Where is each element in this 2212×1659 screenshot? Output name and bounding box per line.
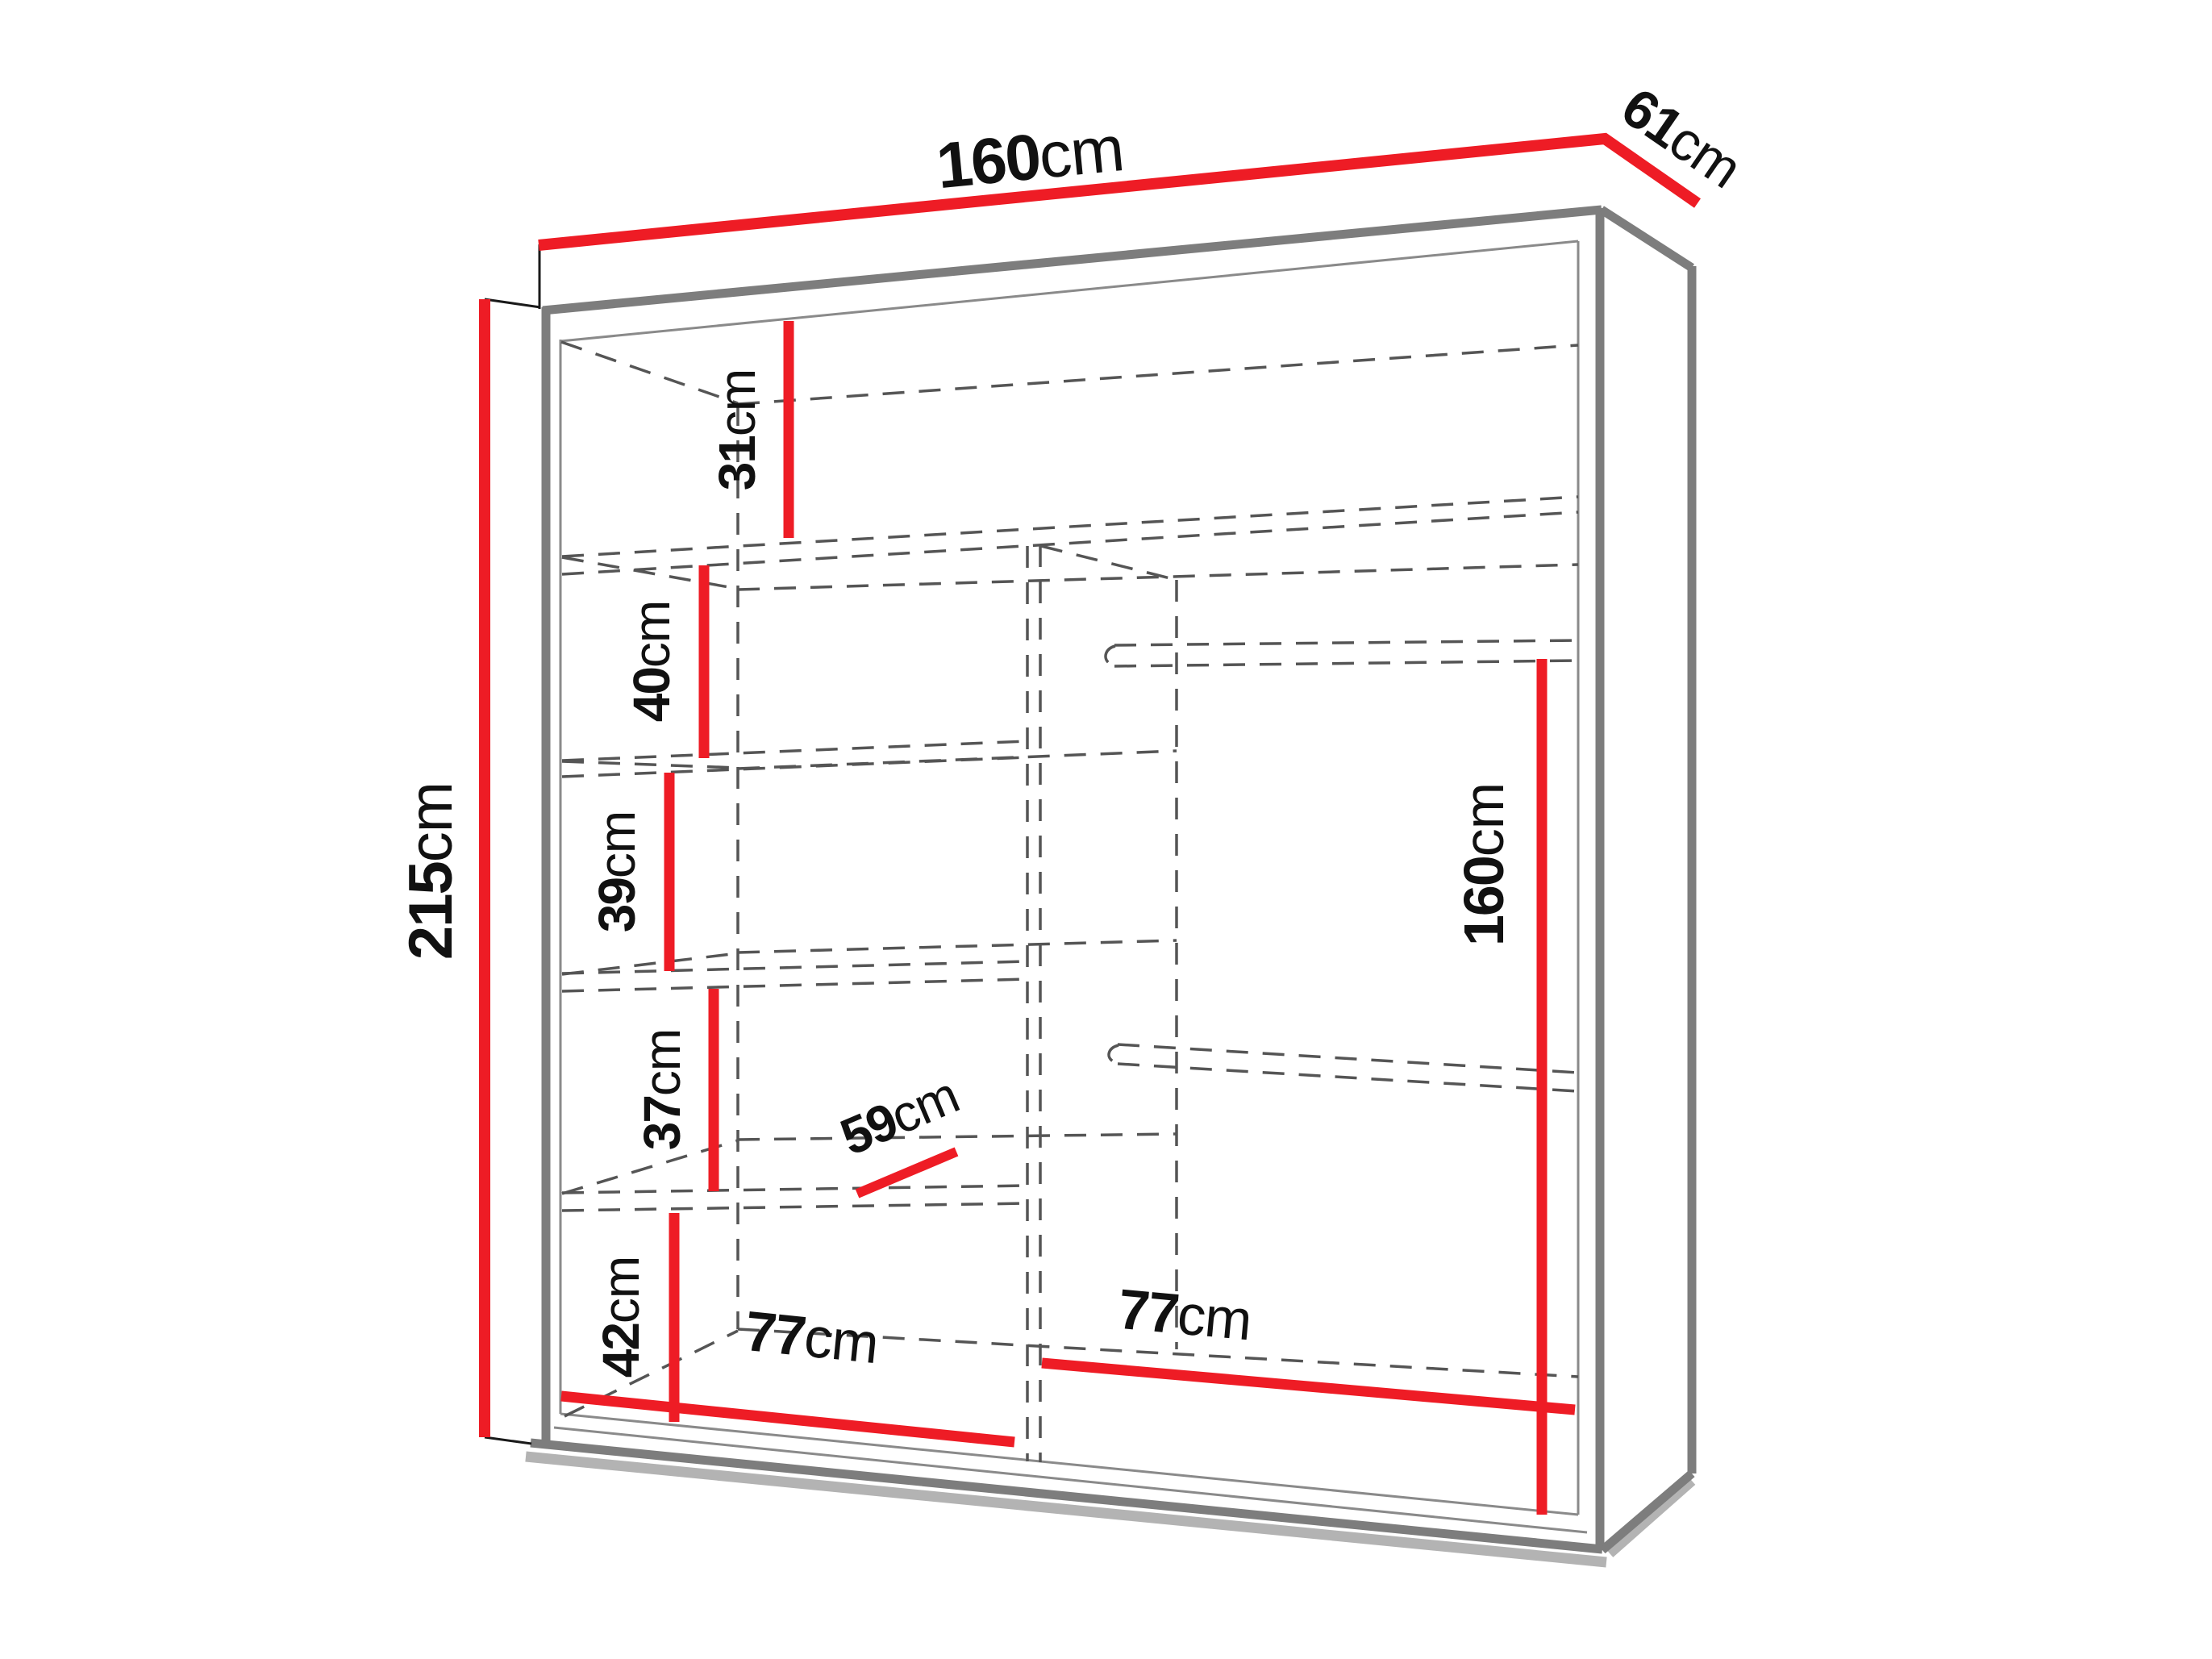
height-dim-bottom-connector xyxy=(485,1437,531,1444)
plinth-edge xyxy=(554,1428,1587,1532)
side-bottom-bevel-edge xyxy=(1602,1474,1692,1550)
diagram-canvas: 160cm 61cm 215cm 31cm 40cm 39cm 37cm 42c… xyxy=(0,0,2212,1659)
shelf-1-back-edge xyxy=(738,565,1578,590)
upper-rail-top-edge xyxy=(1114,640,1578,645)
partition-top-depth-edge xyxy=(1041,546,1177,580)
label-left-section-width: 77cm xyxy=(742,1299,881,1375)
label-hanging-height: 160cm xyxy=(1452,783,1515,946)
height-dim-top-connector xyxy=(485,299,540,307)
bottom-shadow xyxy=(526,1457,1606,1562)
shelf-4-back-edge xyxy=(738,1134,1177,1140)
wardrobe-dimension-diagram: 160cm 61cm 215cm 31cm 40cm 39cm 37cm 42c… xyxy=(0,0,2212,1659)
shelf-3-front-bottom-edge xyxy=(562,979,1027,991)
upper-rail-bottom-edge xyxy=(1114,661,1578,666)
label-overall-height: 215cm xyxy=(397,782,465,960)
shelf-4-front-top-edge xyxy=(562,1186,1027,1193)
interior-dashed-lines xyxy=(561,342,1578,1462)
shelf-3-back-edge xyxy=(738,940,1177,952)
side-top-edge xyxy=(1602,210,1692,268)
shelf-3-front-top-edge xyxy=(562,961,1027,973)
dimension-lines xyxy=(485,139,1698,1515)
bevel-shadow xyxy=(1610,1481,1692,1553)
shelf-2-left-depth-edge xyxy=(562,761,738,768)
shelf-4-front-bottom-edge xyxy=(562,1203,1027,1211)
shelf-1-front-top-edge xyxy=(562,497,1578,556)
front-bottom-edge xyxy=(531,1443,1602,1549)
lower-rail-bottom-edge xyxy=(1118,1064,1578,1091)
lower-rail-left-cap xyxy=(1109,1045,1118,1063)
shelf-1-left-depth-edge xyxy=(562,557,738,589)
upper-rail-left-cap xyxy=(1106,646,1115,665)
ceiling-back-edge xyxy=(738,345,1578,404)
shelf-2-back-edge xyxy=(738,751,1177,769)
label-right-section-width: 77cm xyxy=(1115,1278,1254,1353)
shelf-2-front-top-edge xyxy=(562,741,1027,761)
label-bottom-shelf-gap: 42cm xyxy=(592,1257,650,1378)
dim-line-77-right xyxy=(1042,1363,1575,1410)
label-overall-depth: 61cm xyxy=(1610,76,1752,199)
label-shelf-gap-3: 39cm xyxy=(588,811,646,933)
shelf-1-front-bottom-edge xyxy=(562,512,1578,574)
lower-rail-top-edge xyxy=(1118,1044,1578,1073)
label-shelf-gap-2: 40cm xyxy=(623,601,681,723)
label-shelf-gap-4: 37cm xyxy=(633,1029,691,1151)
label-top-shelf-gap: 31cm xyxy=(708,369,766,491)
